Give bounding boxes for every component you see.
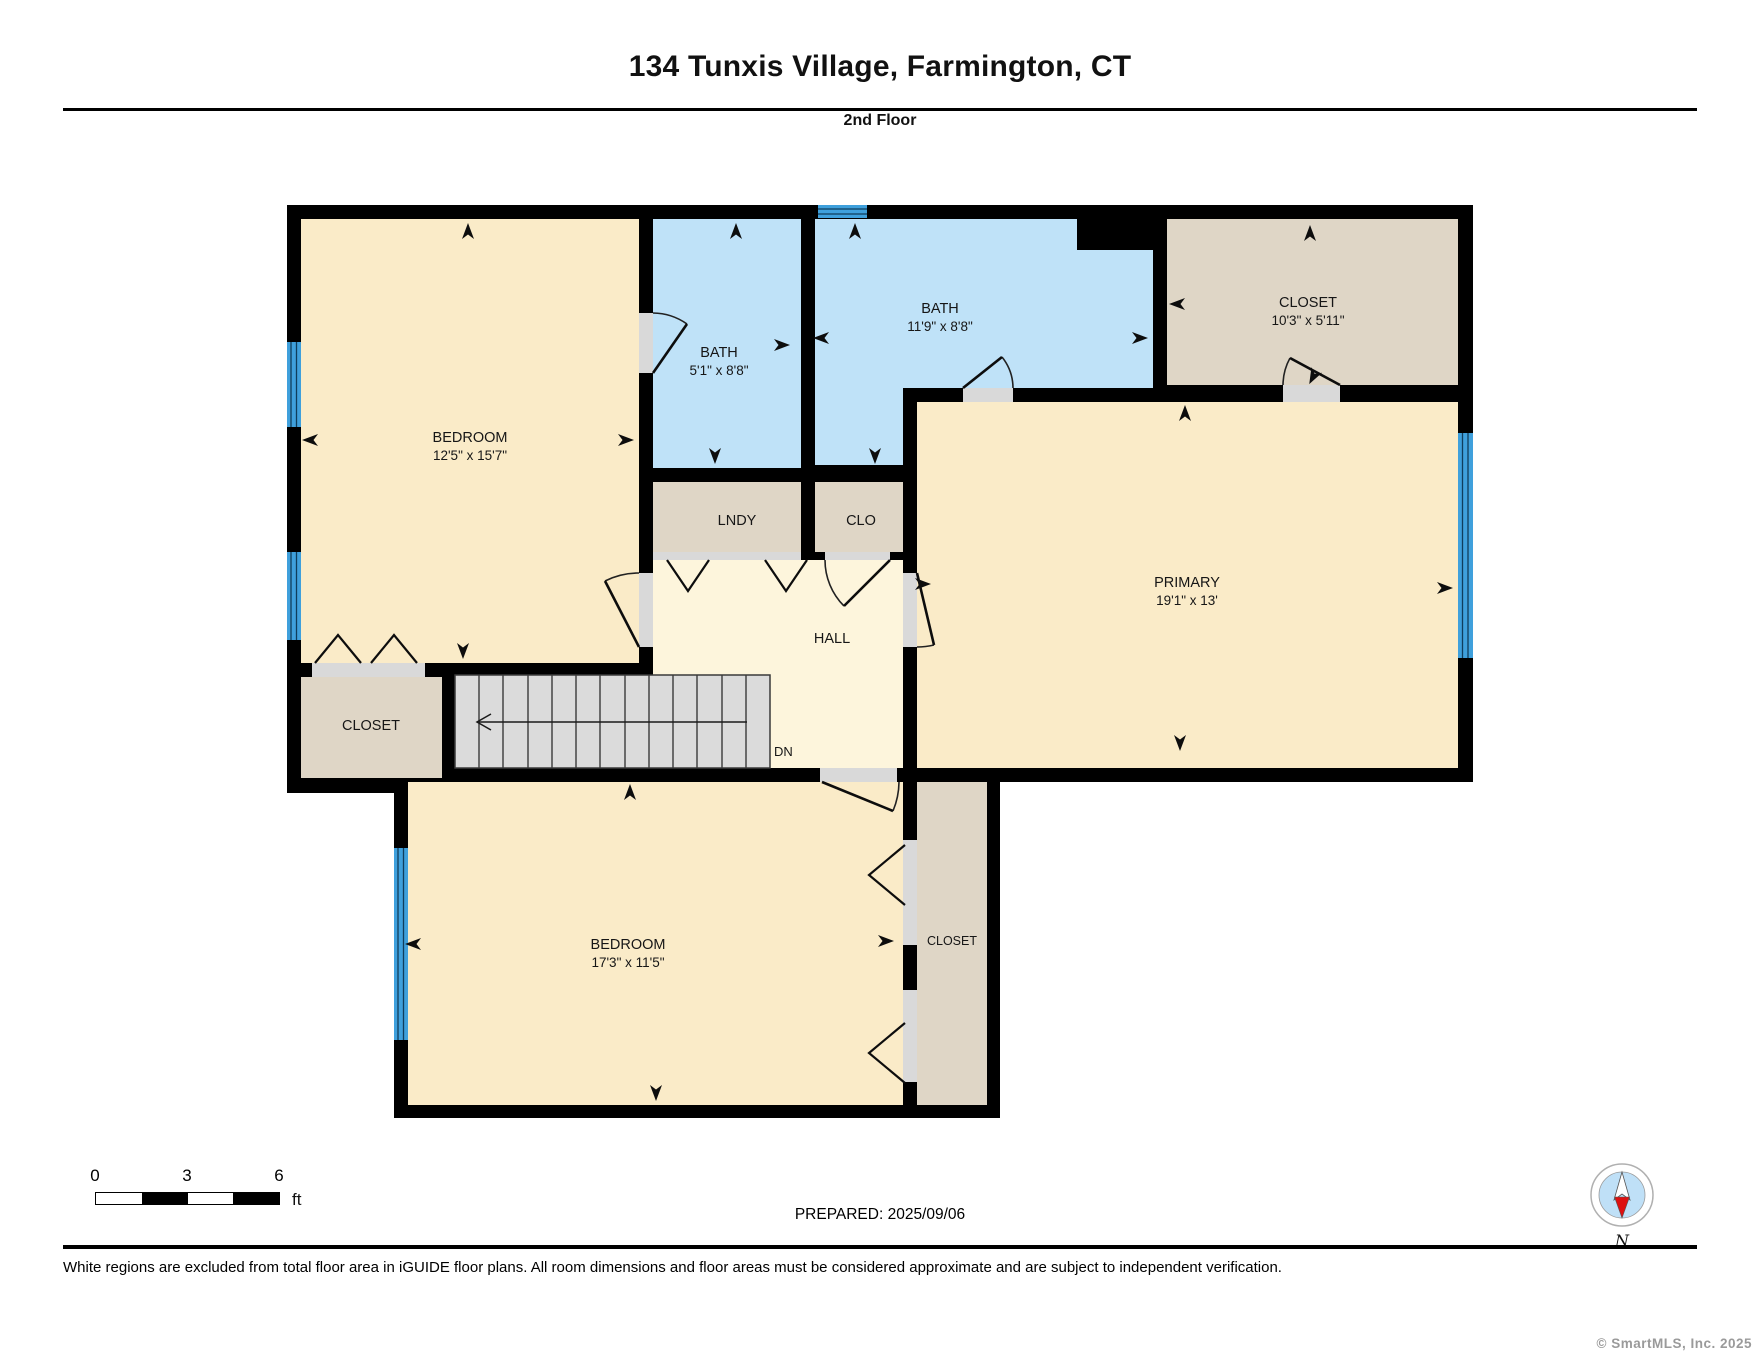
jamb-bedroom1-door xyxy=(639,573,653,647)
dims-bath2: 11'9" x 8'8" xyxy=(907,319,973,334)
jamb-bedroom2-closet-lower xyxy=(903,990,917,1082)
jamb-bedroom2-closet-upper xyxy=(903,840,917,945)
dims-primary: 19'1" x 13' xyxy=(1156,593,1218,608)
label-primary: PRIMARY xyxy=(1154,575,1220,591)
page-title: 134 Tunxis Village, Farmington, CT xyxy=(0,50,1760,84)
jamb-bedroom2-door xyxy=(820,768,897,782)
label-closet-top-right: CLOSET xyxy=(1279,295,1337,311)
label-closet-small: CLO xyxy=(846,513,876,529)
window-primary-right xyxy=(1458,433,1473,658)
label-closet-bedroom2: CLOSET xyxy=(927,934,977,948)
floor-plan-drawing: DN BEDRO xyxy=(287,205,1473,1125)
prepared-date: PREPARED: 2025/09/06 xyxy=(0,1206,1760,1224)
scale-bar xyxy=(95,1192,280,1205)
footer-divider xyxy=(63,1245,1697,1249)
label-bedroom1: BEDROOM xyxy=(433,430,508,446)
floor-subtitle: 2nd Floor xyxy=(0,112,1760,130)
scale-tick-6: 6 xyxy=(274,1166,283,1186)
label-bath1: BATH xyxy=(700,345,738,361)
compass-icon: N xyxy=(1588,1160,1656,1252)
label-bedroom2: BEDROOM xyxy=(591,937,666,953)
footer-disclaimer: White regions are excluded from total fl… xyxy=(63,1259,1282,1276)
window-bath2-top xyxy=(818,205,867,218)
dims-closet-top-right: 10'3" x 5'11" xyxy=(1271,313,1344,328)
label-laundry: LNDY xyxy=(718,513,757,529)
jamb-closet-top-right-door xyxy=(1283,385,1340,402)
floor-plan-page: 134 Tunxis Village, Farmington, CT 2nd F… xyxy=(0,0,1760,1360)
label-closet-bottom-left: CLOSET xyxy=(342,718,400,734)
wall-bedroom2-closet-mid xyxy=(903,945,917,990)
copyright-notice: © SmartMLS, Inc. 2025 xyxy=(1597,1336,1753,1351)
jamb-bath1-door xyxy=(639,313,653,373)
jamb-laundry-opening xyxy=(653,552,801,560)
window-bedroom1-upper xyxy=(287,342,301,427)
dims-bath1: 5'1" x 8'8" xyxy=(689,363,748,378)
jamb-closet-small-door xyxy=(825,552,890,560)
jamb-bath2-door xyxy=(963,388,1013,402)
window-bedroom1-lower xyxy=(287,552,301,640)
staircase: DN xyxy=(455,675,793,768)
stairs-down-label: DN xyxy=(774,744,793,759)
scale-tick-3: 3 xyxy=(182,1166,191,1186)
scale-tick-0: 0 xyxy=(90,1166,99,1186)
label-hall: HALL xyxy=(814,631,850,647)
dims-bedroom2: 17'3" x 11'5" xyxy=(591,955,664,970)
header-divider xyxy=(63,108,1697,111)
jamb-bedroom1-closet xyxy=(312,663,425,677)
label-bath2: BATH xyxy=(921,301,959,317)
dims-bedroom1: 12'5" x 15'7" xyxy=(433,448,507,463)
jamb-primary-door xyxy=(903,573,917,647)
